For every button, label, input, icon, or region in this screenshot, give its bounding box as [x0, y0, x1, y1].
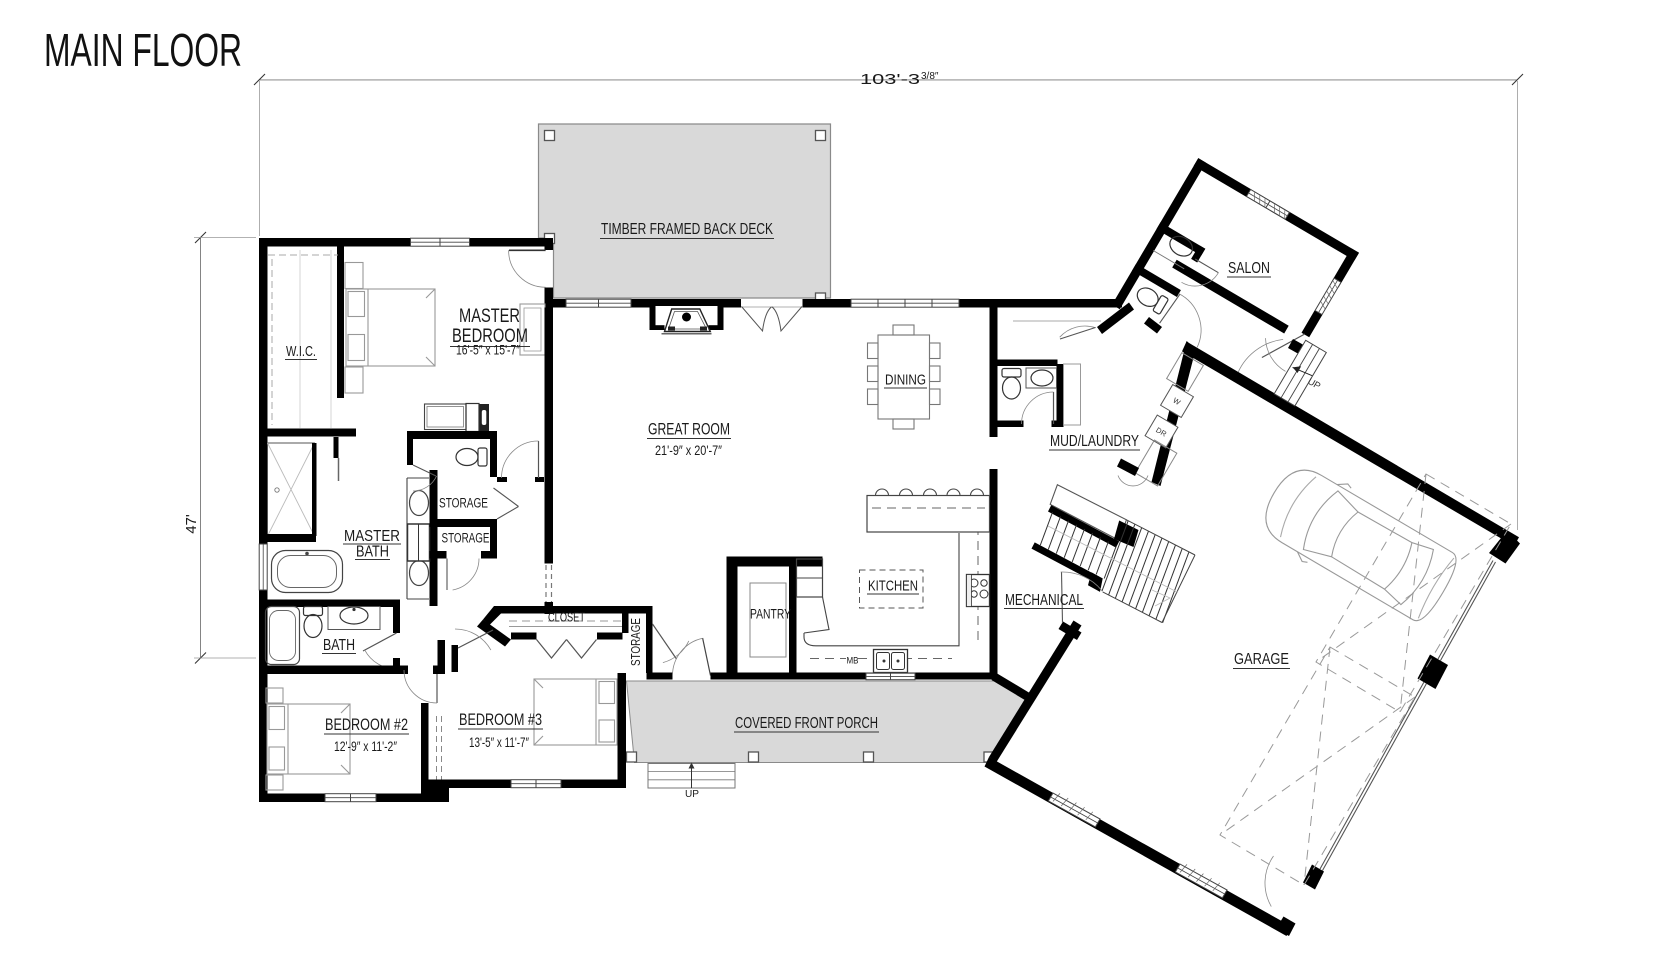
- svg-text:12'-9″ x 11'-2″: 12'-9″ x 11'-2″: [334, 739, 397, 754]
- svg-text:SALON: SALON: [1228, 260, 1270, 277]
- svg-text:21'-9″ x 20'-7″: 21'-9″ x 20'-7″: [655, 443, 722, 458]
- svg-text:STORAGE: STORAGE: [442, 531, 490, 546]
- svg-text:GREAT ROOM: GREAT ROOM: [648, 420, 730, 439]
- svg-text:MASTER: MASTER: [459, 306, 520, 327]
- svg-text:MECHANICAL: MECHANICAL: [1005, 592, 1083, 609]
- svg-text:TIMBER FRAMED BACK DECK: TIMBER FRAMED BACK DECK: [601, 221, 774, 238]
- svg-text:DINING: DINING: [885, 373, 926, 389]
- svg-text:103'-3: 103'-3: [860, 71, 920, 88]
- svg-text:3/8″: 3/8″: [921, 71, 939, 82]
- svg-text:16'-5″ x 15'-7″: 16'-5″ x 15'-7″: [456, 343, 520, 358]
- svg-text:GARAGE: GARAGE: [1234, 651, 1289, 668]
- svg-text:KITCHEN: KITCHEN: [868, 579, 918, 595]
- svg-text:MUD/LAUNDRY: MUD/LAUNDRY: [1050, 433, 1139, 450]
- svg-text:47': 47': [183, 514, 200, 534]
- svg-text:MAIN FLOOR: MAIN FLOOR: [44, 24, 242, 76]
- svg-text:PANTRY: PANTRY: [750, 607, 791, 622]
- svg-text:UP: UP: [685, 788, 699, 800]
- svg-text:BATH: BATH: [356, 544, 389, 561]
- svg-text:W.I.C.: W.I.C.: [286, 344, 316, 360]
- svg-text:BATH: BATH: [323, 637, 355, 654]
- svg-text:BEDROOM #3: BEDROOM #3: [459, 710, 542, 729]
- svg-text:13'-5″ x 11'-7″: 13'-5″ x 11'-7″: [469, 735, 529, 750]
- svg-text:BEDROOM #2: BEDROOM #2: [325, 715, 408, 734]
- svg-text:STORAGE: STORAGE: [439, 496, 488, 511]
- svg-text:COVERED FRONT PORCH: COVERED FRONT PORCH: [735, 715, 878, 732]
- svg-text:MASTER: MASTER: [344, 528, 400, 545]
- svg-text:CLOSET: CLOSET: [548, 611, 585, 625]
- svg-text:STORAGE: STORAGE: [628, 618, 643, 666]
- svg-text:MB: MB: [847, 656, 859, 667]
